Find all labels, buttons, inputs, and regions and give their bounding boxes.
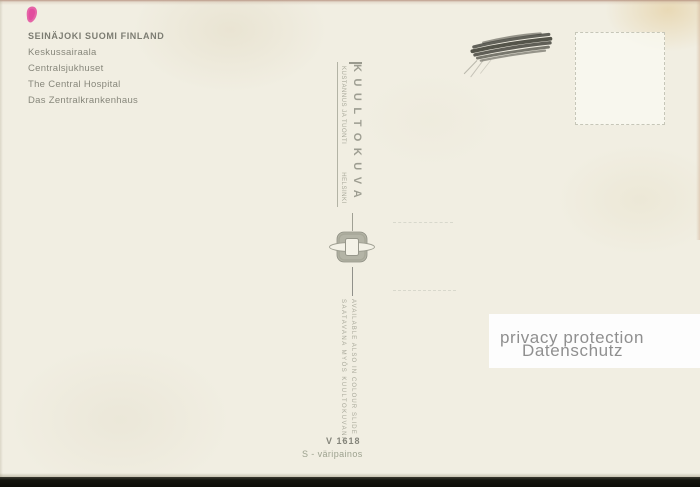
bottom-border-bar (0, 477, 700, 487)
caption-line: Keskussairaala (28, 47, 164, 63)
address-line (393, 290, 456, 291)
availability-finnish: SAATAVANA MYÖS KUULTOKUVANA (338, 299, 347, 442)
card-edge-left (0, 0, 3, 487)
address-line (393, 222, 453, 223)
caption-line: Centralsjukhuset (28, 63, 164, 79)
pink-mark-icon (24, 6, 40, 24)
publisher-brand: KUULTOKUVA (349, 64, 364, 204)
print-note: S - väripainos (302, 449, 363, 459)
divider-line-upper (352, 213, 353, 231)
publisher-imprint: KUSTANNUS JA TUONTIHELSINKI (338, 66, 347, 204)
availability-english: AVAILABLE ALSO IN COLOUR SLIDE (348, 299, 357, 435)
postcard-back: SEINÄJOKI SUOMI FINLAND Keskussairaala C… (0, 0, 700, 487)
pencil-scribble-icon (455, 26, 565, 81)
publisher-imprint-text: KUSTANNUS JA TUONTI (340, 66, 346, 144)
privacy-text-de: Datenschutz (522, 341, 623, 361)
card-edge-right (696, 0, 700, 240)
slide-viewer-emblem-icon (329, 230, 375, 265)
caption-line: Das Zentralkrankenhaus (28, 95, 164, 111)
card-edge-top (0, 0, 700, 5)
privacy-overlay: privacy protection Datenschutz (489, 314, 700, 368)
catalog-number: V 1618 (326, 436, 361, 446)
stamp-box (575, 32, 665, 125)
publisher-city: HELSINKI (340, 172, 346, 203)
divider-line-lower (352, 267, 353, 296)
caption-block: SEINÄJOKI SUOMI FINLAND Keskussairaala C… (28, 31, 164, 111)
caption-line: The Central Hospital (28, 79, 164, 95)
caption-title: SEINÄJOKI SUOMI FINLAND (28, 31, 164, 47)
